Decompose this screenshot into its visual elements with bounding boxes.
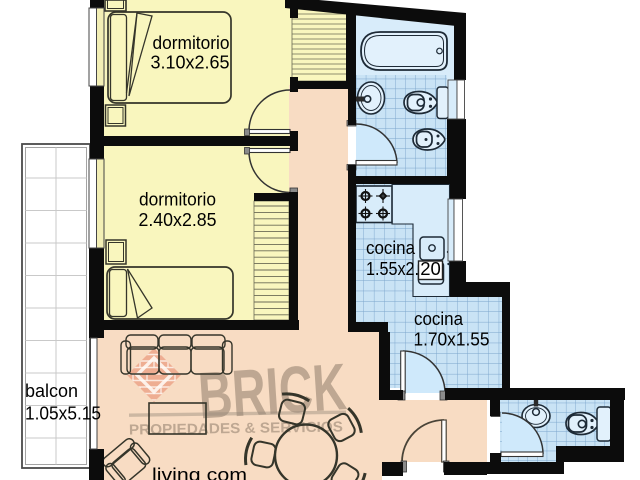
- svg-text:1.55x2.: 1.55x2.: [366, 258, 419, 279]
- svg-text:1.70x1.55: 1.70x1.55: [414, 329, 490, 350]
- svg-text:2.40x2.85: 2.40x2.85: [139, 209, 217, 230]
- svg-text:1.05x5.15: 1.05x5.15: [25, 403, 101, 424]
- svg-text:dormitorio: dormitorio: [153, 32, 230, 53]
- svg-text:cocina: cocina: [366, 237, 416, 258]
- svg-text:3.10x2.65: 3.10x2.65: [151, 52, 230, 73]
- svg-text:20: 20: [420, 258, 441, 279]
- svg-text:balcon: balcon: [25, 380, 78, 401]
- svg-text:living com: living com: [152, 464, 247, 480]
- svg-text:cocina: cocina: [414, 308, 464, 329]
- svg-text:PROPIEDADES & SERVICIOS: PROPIEDADES & SERVICIOS: [129, 420, 344, 439]
- svg-text:dormitorio: dormitorio: [139, 189, 216, 210]
